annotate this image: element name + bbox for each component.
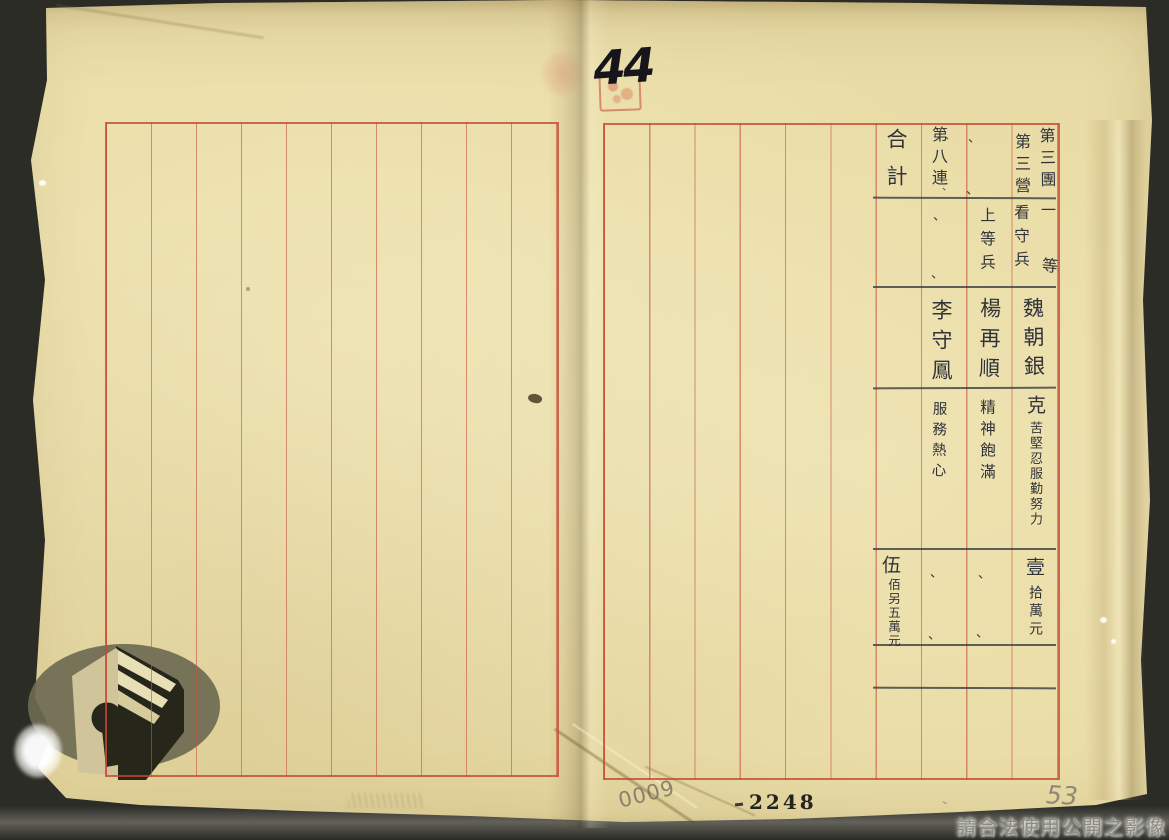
faint-pencil-smudge [348,793,424,808]
person-name: 李守鳳 [926,299,956,389]
citation-text: 精神飽滿 [976,399,998,485]
rank-char: 一 [1038,202,1059,217]
printed-page-number: 2248 [749,790,817,814]
punch-hole-dot [1111,639,1116,644]
total-amount: 佰另五萬元 [884,578,903,648]
table-row-divider [873,286,1056,288]
ditto-mark: 、 [978,563,991,582]
ditto-mark: 、 [933,205,946,224]
ditto-mark: 、 [942,178,952,193]
award-amount: 壹 [1021,557,1048,576]
ditto-mark: 、 [976,622,989,641]
ditto-mark: 、 [930,562,943,581]
rank-title: 上等兵 [976,207,998,278]
ditto-mark: 、 [968,127,981,146]
citation-text: 苦堅忍服勤努力 [1025,421,1044,527]
ditto-mark: 、 [931,263,944,282]
unit-battalion: 第三營 [1009,133,1033,199]
pencil-number-right: 53 [1045,780,1078,811]
punch-hole-dot [1100,617,1107,623]
unit-regiment: 第三團 [1033,127,1058,193]
faint-red-stamp-icon [542,52,582,96]
handwritten-sheet-number: 44 [589,38,656,98]
table-row-divider [873,548,1056,550]
rank-char: 等 [1035,256,1061,274]
left-page-ruled-frame [105,122,559,777]
ditto-mark: 、 [928,624,941,643]
award-amount: 拾萬元 [1025,585,1045,639]
citation-text: 克 [1022,395,1049,414]
scanned-document: 第三團 第三營 一 等 看守兵 魏朝銀 克 苦堅忍服勤努力 壹 拾萬元 、 、 … [0,0,1169,840]
total-label: 合計 [881,128,911,202]
total-amount: 伍 [877,555,904,574]
ditto-mark: 、 [945,127,955,142]
archive-watermark: 請合法使用公開之影像 [956,811,1166,840]
punch-hole-dot [39,180,46,186]
paper-hole-highlight [14,724,62,778]
person-name: 楊再順 [973,297,1005,388]
rank-title: 看守兵 [1010,204,1032,275]
person-name: 魏朝銀 [1017,297,1049,385]
ditto-mark: 、 [966,179,979,198]
citation-text: 服務熱心 [927,401,949,483]
paper-speck [246,287,250,291]
